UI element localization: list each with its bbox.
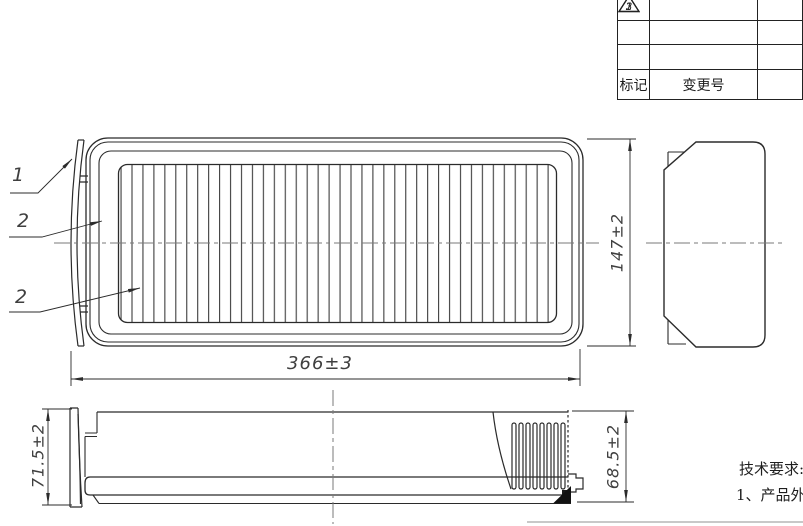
revision-extra-cell: [758, 45, 802, 70]
revision-extra-cell: [758, 21, 802, 45]
technical-requirements-title: 技术要求:: [739, 458, 803, 479]
front-view: [70, 408, 583, 507]
mark-header-cell: 标记: [618, 70, 650, 99]
revision-number: 1: [626, 2, 632, 13]
technical-requirements-item: 1、产品外观: [736, 484, 803, 505]
top-view: [71, 138, 583, 346]
revision-change-cell: [650, 21, 758, 45]
revision-extra-cell: [758, 0, 802, 21]
revision-table: 3 2 1 标记 变更号: [617, 0, 803, 100]
callout-2-label: 2: [17, 210, 29, 232]
revision-symbol-cell: 1: [618, 45, 650, 70]
seal-strip-edge: [70, 408, 82, 507]
change-no-header-cell: 变更号: [650, 70, 758, 99]
revision-triangle-icon: 1: [618, 0, 640, 13]
revision-change-cell: [650, 0, 758, 21]
side-view: [664, 142, 765, 347]
dimension-overall-width: 147±2: [608, 193, 627, 293]
revision-change-cell: [650, 45, 758, 70]
dimension-right-height: 68.5±2: [604, 402, 623, 512]
callout-2-label: 2: [15, 286, 27, 308]
drawing-canvas: 3 2 1 标记 变更号 366±3 147±2 71.5±2 68.5±2 1: [0, 0, 803, 526]
callout-1-label: 1: [12, 164, 24, 186]
dimension-overall-length: 366±3: [260, 353, 380, 374]
dimension-left-height: 71.5±2: [29, 406, 48, 506]
revision-extra-cell: [758, 70, 802, 99]
revision-symbol-cell: 2: [618, 21, 650, 45]
